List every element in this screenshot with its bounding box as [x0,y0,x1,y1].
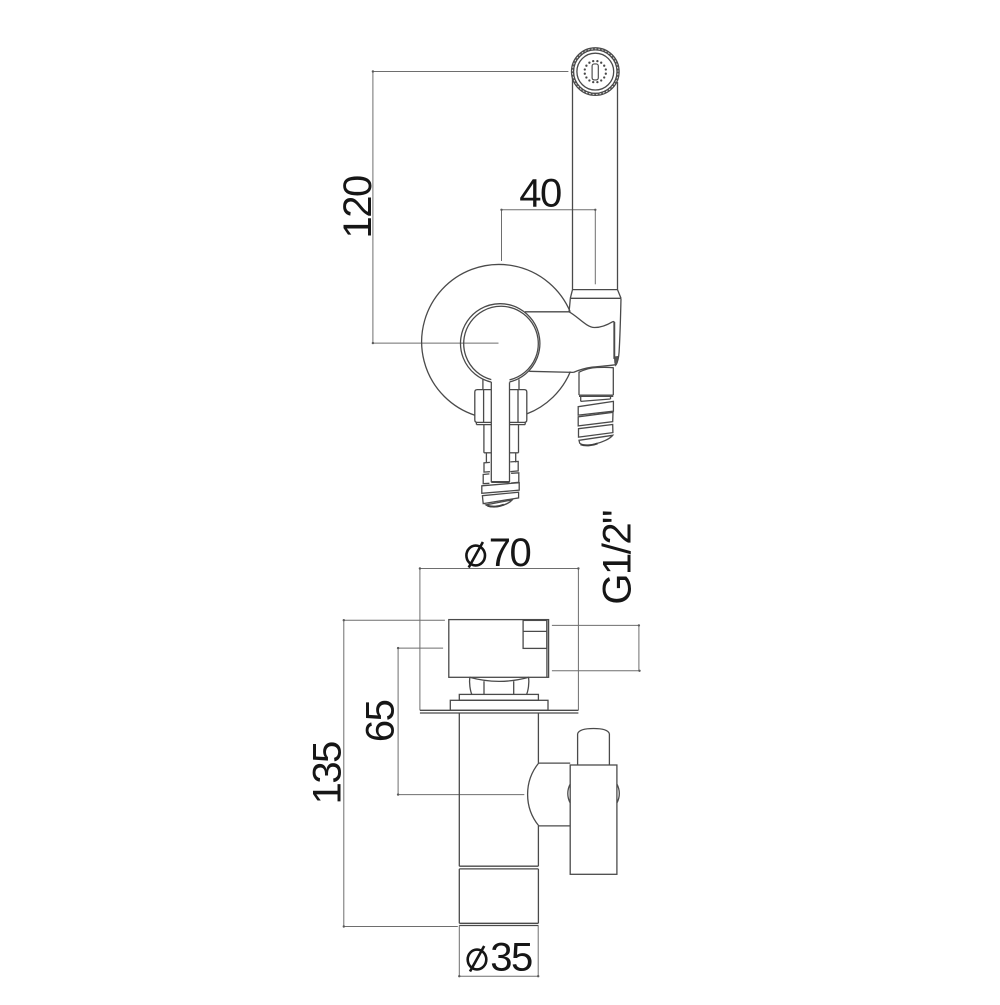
svg-text:135: 135 [306,742,350,804]
svg-text:70: 70 [489,531,531,575]
svg-text:35: 35 [490,936,532,980]
svg-text:G1/2": G1/2" [596,511,640,605]
svg-text:40: 40 [519,172,561,216]
svg-text:120: 120 [336,176,380,238]
svg-text:65: 65 [359,700,403,742]
